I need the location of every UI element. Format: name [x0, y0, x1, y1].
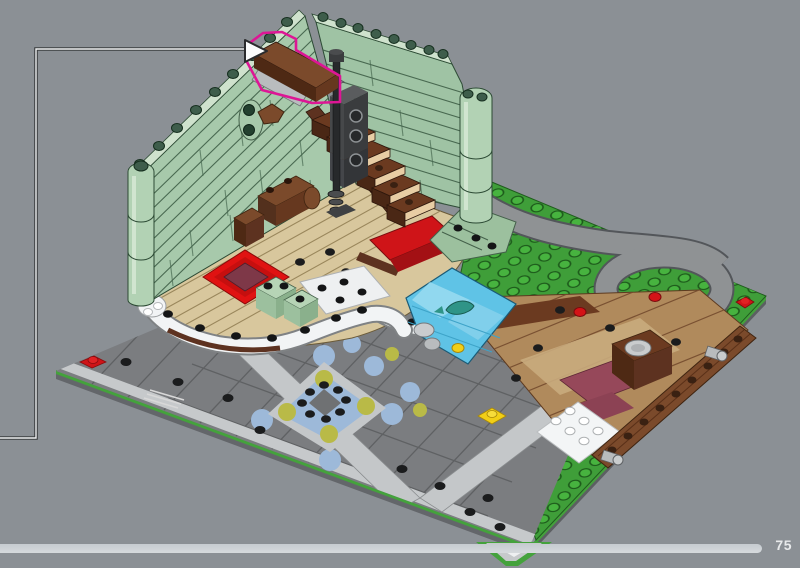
mosaic-olive-arc — [385, 347, 399, 361]
mosaic-olive-arc — [357, 397, 375, 415]
mosaic-arc — [381, 403, 403, 425]
page-number: 75 — [775, 537, 792, 553]
mosaic-olive-arc — [278, 403, 296, 421]
rock — [424, 338, 440, 350]
lego-3d-viewport[interactable] — [0, 0, 800, 568]
mosaic-olive-arc — [413, 403, 427, 417]
page-progress-bar[interactable] — [0, 544, 762, 553]
left-corner-column — [128, 161, 154, 306]
rock — [414, 323, 434, 337]
app-window: 75 — [0, 0, 800, 568]
mosaic-arc — [400, 382, 420, 402]
pin-holes — [350, 110, 362, 166]
mosaic-arc — [364, 356, 384, 376]
mosaic-arc — [319, 449, 341, 471]
yellow-stud — [452, 344, 464, 353]
mosaic-olive-arc — [320, 425, 338, 443]
right-corner-column — [460, 88, 492, 223]
